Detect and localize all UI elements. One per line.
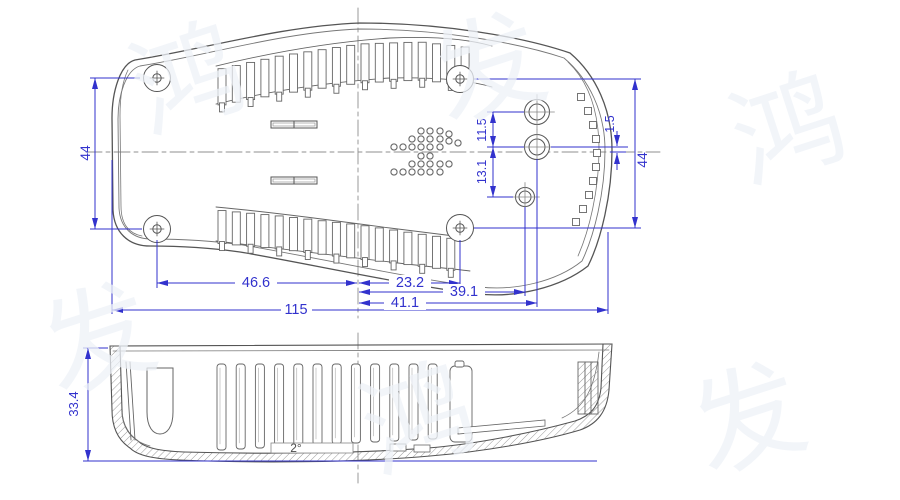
vent-hole: [418, 161, 424, 167]
vent-hole: [437, 144, 443, 150]
louver-slot-tab: [220, 103, 225, 112]
vent-hole: [427, 144, 433, 150]
dim-left-height: [90, 78, 142, 229]
side-rib: [236, 364, 245, 449]
draft-angle-annotation: 2°: [271, 441, 353, 455]
louver-slot-tab: [277, 92, 282, 101]
louver-slot: [261, 59, 269, 97]
louver-slot-tab: [391, 79, 396, 88]
vent-hole: [437, 169, 443, 175]
side-view-shell-wall: [110, 344, 612, 462]
louver-slot: [390, 230, 398, 263]
edge-notch: [594, 150, 601, 157]
side-view-right-rib-block: [578, 362, 598, 414]
side-view-screw-post: [147, 368, 173, 434]
edge-notch: [590, 178, 597, 185]
side-view-left-rib: [126, 362, 135, 440]
dimensions: [83, 78, 641, 461]
louver-slot-tab: [363, 81, 368, 90]
louver-slot: [418, 42, 426, 80]
louver-slot: [290, 218, 298, 251]
dim-boss-gap-upper: [487, 112, 524, 147]
side-rib: [390, 364, 399, 441]
edge-notch: [593, 136, 600, 143]
vent-hole: [427, 161, 433, 167]
vent-hole: [409, 161, 415, 167]
louver-slot: [275, 56, 283, 94]
vent-hole: [455, 140, 461, 146]
side-rib: [371, 364, 380, 442]
vent-hole: [427, 136, 433, 142]
vent-hole: [446, 161, 452, 167]
louver-slot: [361, 226, 369, 260]
edge-notch: [590, 122, 597, 129]
edge-notch: [593, 164, 600, 171]
louver-slot: [304, 219, 312, 252]
louver-slot: [404, 232, 412, 264]
top-view: [86, 8, 660, 318]
edge-notch: [586, 192, 593, 199]
louver-slot: [433, 44, 441, 82]
top-louver-slots: [218, 42, 469, 112]
drawing-svg: 2°: [0, 0, 900, 500]
louver-slot: [261, 215, 269, 248]
louver-slot: [304, 52, 312, 90]
louver-slot: [247, 213, 255, 246]
louver-slot: [247, 62, 255, 99]
side-rib: [332, 364, 341, 444]
side-rib: [313, 364, 322, 445]
dim-label-boss-gap-lower: 13.1: [475, 160, 489, 184]
center-slots: [271, 121, 317, 184]
louver-slot-tab: [248, 244, 253, 253]
louver-slot: [232, 66, 240, 103]
vent-hole: [446, 138, 452, 144]
side-view-top-rim: [110, 344, 612, 351]
vent-hole: [437, 128, 443, 134]
vent-hole: [418, 144, 424, 150]
dim-label-center-to-screw-right: 23.2: [396, 275, 424, 291]
side-rib: [409, 364, 418, 440]
louver-slot: [447, 238, 455, 270]
vent-hole: [437, 136, 443, 142]
louver-slot-tab: [420, 264, 425, 273]
vent-hole: [418, 153, 424, 159]
louver-slot: [332, 48, 340, 87]
dim-label-boss-center-offset: 1.5: [603, 115, 617, 132]
edge-notch: [585, 108, 592, 115]
louver-slot-tab: [363, 258, 368, 267]
dim-label-draft-angle: 2°: [290, 441, 302, 455]
louver-slot-tab: [334, 254, 339, 263]
dim-label-right-height: 44: [634, 152, 650, 168]
vent-hole: [427, 169, 433, 175]
louver-slot-tab: [277, 247, 282, 256]
vent-hole: [418, 169, 424, 175]
louver-slot-tab: [420, 78, 425, 87]
dim-label-backgrounds: [235, 275, 485, 317]
louver-slot: [290, 54, 298, 92]
vent-hole: [427, 153, 433, 159]
side-rib: [351, 364, 360, 443]
dim-right-height: [474, 79, 641, 228]
louver-slot: [404, 42, 412, 80]
dim-label-center-to-small-boss: 39.1: [450, 284, 478, 300]
louver-slot-tab: [305, 88, 310, 97]
dim-label-left-height: 44: [77, 145, 93, 161]
louver-slot: [390, 43, 398, 81]
vent-hole: [400, 144, 406, 150]
side-rib: [255, 364, 264, 448]
edge-notch: [578, 94, 585, 101]
vent-hole: [418, 136, 424, 142]
louver-slot: [433, 236, 441, 268]
dim-boss-center-offset: [551, 131, 628, 170]
top-view-left-wall-line: [120, 70, 142, 236]
vent-hole: [409, 169, 415, 175]
louver-slot: [347, 45, 355, 84]
side-rib: [217, 364, 226, 450]
louver-slot-tab: [448, 268, 453, 277]
dim-label-overall-length: 115: [284, 302, 307, 318]
louver-slot: [361, 44, 369, 83]
vent-hole: [409, 144, 415, 150]
louver-slot-tab: [220, 242, 225, 251]
louver-slot: [418, 234, 426, 266]
side-rib: [275, 364, 284, 447]
side-rib: [428, 364, 437, 439]
vent-hole: [409, 136, 415, 142]
louver-slot: [232, 212, 240, 245]
dim-label-boss-gap-upper: 11.5: [475, 118, 489, 141]
vent-hole-cluster: [391, 128, 461, 175]
side-rib: [294, 364, 303, 446]
louver-slot: [332, 222, 340, 256]
louver-slot: [375, 228, 383, 261]
louver-slot: [275, 216, 283, 249]
side-view-ribs: [217, 364, 437, 450]
louver-slot: [218, 69, 226, 105]
right-edge-notches: [573, 94, 601, 226]
dim-boss-gap-lower: [487, 147, 513, 197]
louver-slot: [318, 221, 326, 255]
vent-hole: [437, 161, 443, 167]
top-view-centerlines: [86, 8, 660, 318]
louver-slot-tab: [334, 84, 339, 93]
dim-label-overall-height: 33.4: [66, 391, 81, 416]
dim-label-screw-to-center-left: 46.6: [242, 275, 270, 291]
louver-slot-tab: [248, 98, 253, 107]
vent-hole: [400, 169, 406, 175]
louver-slot: [375, 43, 383, 82]
edge-notch: [573, 219, 580, 226]
louver-slot: [347, 224, 355, 258]
louver-slot: [318, 50, 326, 89]
louver-slot-tab: [391, 261, 396, 270]
edge-notch: [580, 206, 587, 213]
louver-slot: [218, 211, 226, 244]
vent-hole: [446, 131, 452, 137]
cad-drawing-canvas: 鸿 发 鸿 发 鸿 发: [0, 0, 900, 500]
vent-hole: [391, 144, 397, 150]
louver-slot-tab: [305, 250, 310, 259]
vent-hole: [418, 128, 424, 134]
vent-hole: [391, 169, 397, 175]
vent-hole: [427, 128, 433, 134]
dim-label-center-to-boss-column: 41.1: [391, 295, 419, 311]
